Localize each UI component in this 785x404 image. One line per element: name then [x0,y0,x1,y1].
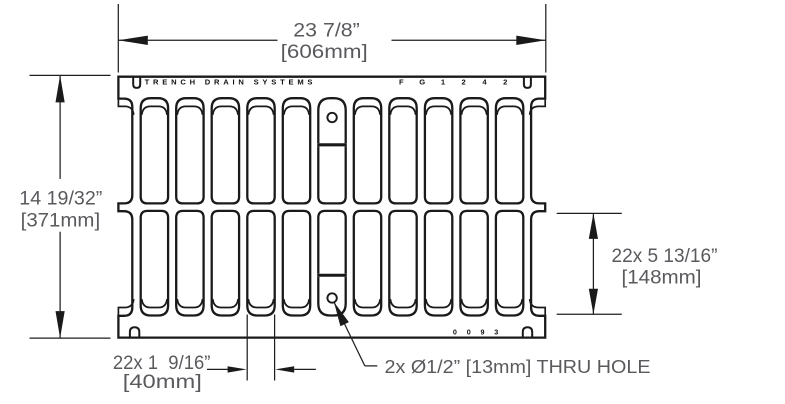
svg-text:9: 9 [481,328,485,337]
svg-text:22x 5 13/16”: 22x 5 13/16” [612,245,718,267]
svg-text:G: G [419,78,428,87]
svg-text:2x Ø1/2” [13mm] THRU HOLE: 2x Ø1/2” [13mm] THRU HOLE [385,357,651,377]
svg-text:14 19/32”: 14 19/32” [19,188,102,210]
svg-text:4: 4 [482,78,489,87]
svg-text:1: 1 [441,78,448,87]
svg-text:[40mm]: [40mm] [123,371,202,393]
svg-text:3: 3 [494,328,498,337]
svg-text:TRENCH DRAIN SYSTEMS: TRENCH DRAIN SYSTEMS [145,78,316,87]
svg-text:F: F [399,78,407,87]
svg-text:[606mm]: [606mm] [281,41,368,63]
svg-text:0: 0 [467,328,471,337]
svg-text:[371mm]: [371mm] [21,209,101,231]
svg-text:0: 0 [453,328,457,337]
svg-text:23 7/8”: 23 7/8” [293,19,360,41]
svg-text:2: 2 [462,78,469,87]
svg-text:2: 2 [503,78,510,87]
svg-text:[148mm]: [148mm] [622,267,702,289]
